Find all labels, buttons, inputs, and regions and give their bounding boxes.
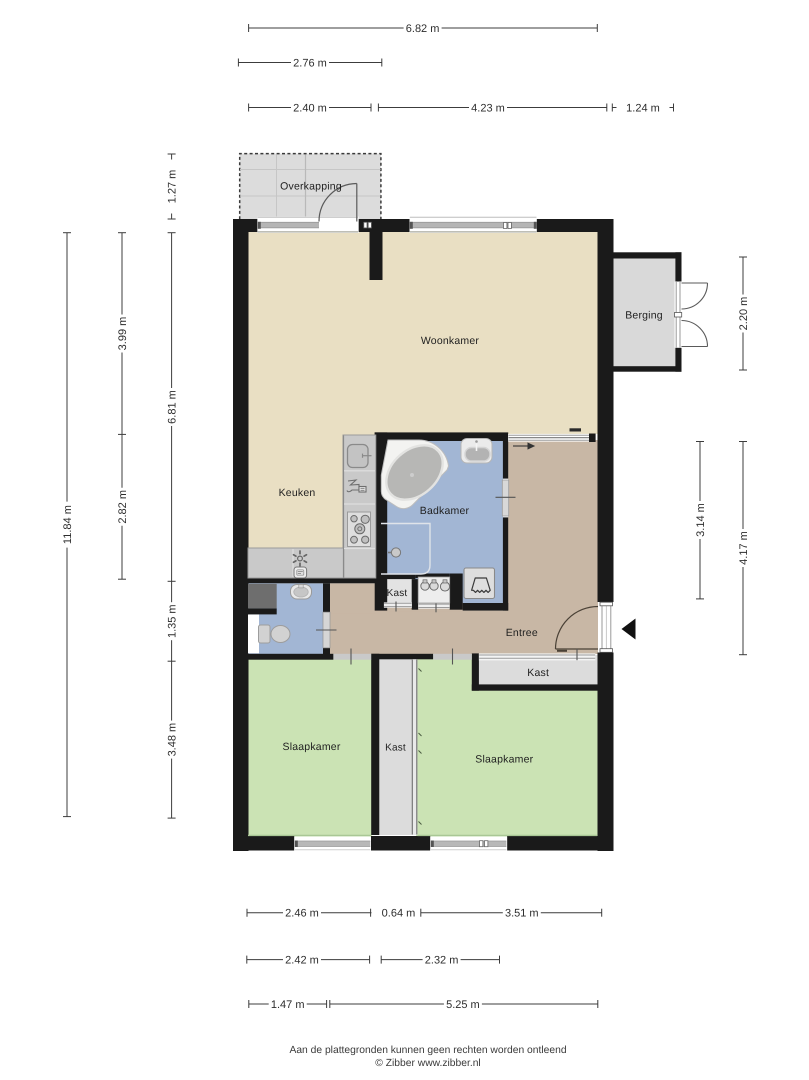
svg-text:5.25 m: 5.25 m bbox=[446, 999, 480, 1011]
svg-text:Kast: Kast bbox=[387, 588, 408, 599]
svg-text:Entree: Entree bbox=[506, 627, 538, 639]
svg-text:Badkamer: Badkamer bbox=[420, 505, 470, 517]
svg-text:Aan de plattegronden kunnen ge: Aan de plattegronden kunnen geen rechten… bbox=[289, 1045, 566, 1056]
svg-text:© Zibber www.zibber.nl: © Zibber www.zibber.nl bbox=[375, 1058, 480, 1069]
svg-text:1.47 m: 1.47 m bbox=[271, 999, 305, 1011]
svg-text:4.17 m: 4.17 m bbox=[738, 531, 750, 565]
svg-text:2.42 m: 2.42 m bbox=[285, 955, 319, 967]
svg-text:2.76 m: 2.76 m bbox=[293, 58, 327, 70]
svg-text:1.24 m: 1.24 m bbox=[626, 103, 660, 115]
svg-text:3.48 m: 3.48 m bbox=[167, 723, 179, 757]
svg-text:Kast: Kast bbox=[385, 743, 406, 754]
svg-text:0.64 m: 0.64 m bbox=[382, 908, 416, 920]
svg-text:Kast: Kast bbox=[527, 667, 549, 679]
svg-text:6.81 m: 6.81 m bbox=[167, 390, 179, 424]
svg-text:2.40 m: 2.40 m bbox=[293, 103, 327, 115]
svg-text:3.51 m: 3.51 m bbox=[505, 908, 539, 920]
svg-text:11.84 m: 11.84 m bbox=[62, 505, 74, 544]
svg-text:2.82 m: 2.82 m bbox=[117, 490, 129, 524]
svg-text:Keuken: Keuken bbox=[279, 487, 316, 499]
svg-text:6.82 m: 6.82 m bbox=[406, 23, 440, 35]
svg-text:2.46 m: 2.46 m bbox=[285, 908, 319, 920]
svg-text:Woonkamer: Woonkamer bbox=[421, 335, 480, 347]
svg-text:Slaapkamer: Slaapkamer bbox=[282, 741, 340, 753]
svg-text:2.32 m: 2.32 m bbox=[425, 955, 459, 967]
svg-text:Berging: Berging bbox=[625, 310, 663, 322]
svg-text:3.14 m: 3.14 m bbox=[695, 503, 707, 537]
svg-text:3.99 m: 3.99 m bbox=[117, 317, 129, 351]
svg-text:2.20 m: 2.20 m bbox=[738, 297, 750, 331]
svg-text:Slaapkamer: Slaapkamer bbox=[475, 754, 533, 766]
svg-text:Overkapping: Overkapping bbox=[280, 181, 342, 193]
svg-text:4.23 m: 4.23 m bbox=[471, 103, 505, 115]
svg-text:1.27 m: 1.27 m bbox=[167, 170, 179, 204]
svg-text:1.35 m: 1.35 m bbox=[167, 604, 179, 638]
